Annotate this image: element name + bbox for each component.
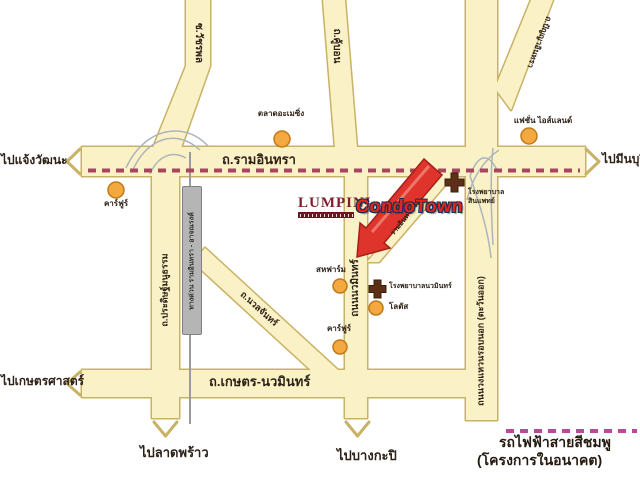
carrefour-west-label: คาร์ฟูร์: [104, 199, 128, 209]
saha-farm-dot: [333, 279, 347, 293]
fashion-island-dot: [521, 128, 537, 144]
expressway-badge: ทางด่วน รามอินทรา - อาจณรงค์: [182, 186, 202, 335]
road-label-ring-road: ถนนวงแหวนรอบนอก (ตะวันออก): [477, 276, 486, 406]
road-label-khubon: ถ.คู้บอน: [331, 29, 341, 64]
hospital-nawamin-label: โรงพยาบาลนวมินทร์: [389, 283, 452, 292]
carrefour-south-dot: [333, 340, 347, 354]
direction-chaengwattana: ไปแจ้งวัฒนะ: [1, 153, 68, 168]
road-label-pradit-manutham: ถ.ประดิษฐ์มนูธรรม: [161, 253, 170, 326]
road-label-kaset-nawamin: ถ.เกษตร-นวมินทร์: [209, 374, 310, 390]
expressway-badge-label: ทางด่วน รามอินทรา - อาจณรงค์: [187, 212, 198, 310]
map-roads-layer: [0, 0, 640, 480]
hospital-synphaet-label-line1: โรงพยาบาล: [468, 189, 504, 198]
road-label-watcharaphon: ซ.วัชรพล: [193, 23, 203, 63]
hospital-nawamin-cross-icon: [369, 280, 386, 298]
fashion-island-label: แฟชั่น ไอส์แลนด์: [514, 116, 572, 126]
market-label: ตลาดอะเมซิ่ง: [258, 109, 304, 119]
lumpini-logo-bar: [298, 212, 354, 218]
arrow-west-chaengwattana: [67, 149, 80, 174]
hospital-synphaet-label-line2: สินแพทย์: [468, 198, 504, 207]
road-label-nawamin: ถนนนวมินทร์: [351, 259, 361, 317]
road-label-ramindra: ถ.รามอินทรา: [222, 152, 296, 168]
arrow-south-latphrao: [154, 422, 177, 436]
market-dot: [274, 131, 290, 147]
direction-latphrao: ไปลาดพร้าว: [140, 445, 209, 461]
arrow-east-minburi: [586, 149, 599, 174]
saha-farm-label: สหฟาร์ม: [316, 265, 346, 275]
direction-bangkapi: ไปบางกะปิ: [337, 448, 397, 464]
map-canvas: ถ.รามอินทรา ถ.เกษตร-นวมินทร์ ซ.วัชรพล ถ.…: [0, 0, 640, 480]
lotus-label: โลตัส: [389, 302, 408, 312]
lotus-dot: [369, 301, 383, 315]
direction-kasetsart: ไปเกษตรศาสตร์: [1, 374, 84, 389]
legend-line2: (โครงการในอนาคต): [477, 452, 602, 470]
hospital-synphaet-label: โรงพยาบาล สินแพทย์: [468, 189, 504, 207]
direction-minburi: ไปมีนบุรี: [602, 152, 640, 167]
condotown-logo-wordmark: CondoTown: [355, 197, 463, 215]
arrow-south-bangkapi: [346, 422, 369, 436]
carrefour-south-label: คาร์ฟูร์: [327, 324, 351, 334]
legend-line1: รถไฟฟ้าสายสีชมพู: [499, 434, 611, 452]
carrefour-west-dot: [108, 182, 124, 198]
